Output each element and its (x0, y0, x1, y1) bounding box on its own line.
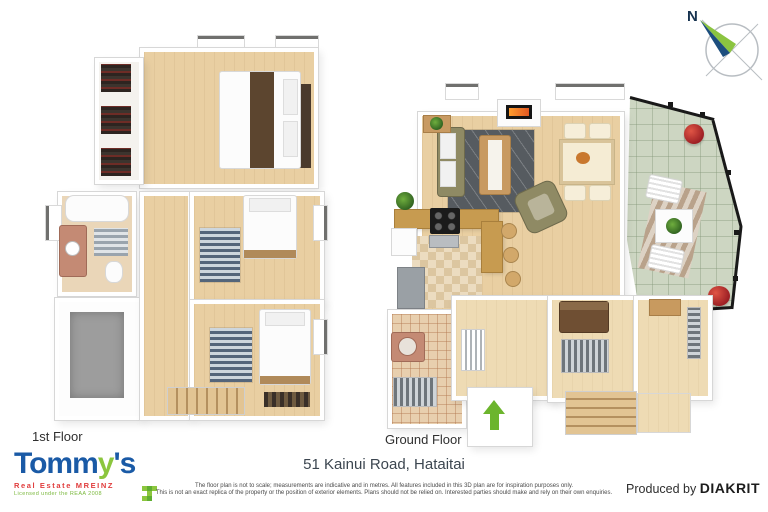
sofa-cushion (441, 134, 455, 158)
fridge (398, 268, 424, 308)
entry-arrow (490, 414, 499, 430)
sofa-cushion (441, 162, 455, 186)
disclaimer: The floor plan is not to scale; measurem… (84, 483, 684, 497)
window-icon (556, 84, 624, 99)
fire-icon (509, 108, 529, 116)
dining-chair (565, 186, 585, 200)
window-icon (446, 84, 478, 99)
bar-stool (502, 224, 516, 238)
flower-pot (684, 124, 704, 144)
ground-floor-plan (0, 0, 768, 512)
cabinet (650, 300, 680, 315)
dresser-top (560, 302, 608, 310)
produced-by-label: Produced by (626, 482, 696, 496)
brand-prefix: Tomm (14, 447, 98, 480)
produced-by: Produced by DIAKRIT (626, 480, 760, 496)
bar-stool (504, 248, 518, 262)
brand-wordmark: Tommy's (14, 448, 174, 480)
brand-y: y (98, 447, 114, 480)
railing-post (726, 170, 731, 175)
table-runner (488, 140, 502, 190)
stair-landing (638, 394, 690, 432)
bar-stool (506, 272, 520, 286)
entry-porch (468, 388, 532, 446)
property-address: 51 Kainui Road, Hataitai (234, 456, 534, 473)
railing-post (668, 102, 673, 107)
dining-chair (565, 124, 585, 138)
ground-floor-label: Ground Floor (385, 432, 462, 447)
dining-chair (590, 124, 610, 138)
compass-north-label: N (687, 8, 698, 25)
radiator (562, 340, 608, 372)
washer-door (399, 338, 416, 355)
radiator (688, 308, 700, 358)
kitchen-peninsula (482, 222, 502, 272)
potted-plant (666, 218, 682, 234)
cooktop (430, 208, 460, 234)
oven (430, 236, 458, 247)
disclaimer-line-1: The floor plan is not to scale; measurem… (84, 483, 684, 490)
floorplan-page: N 1st Floor Ground Floor Tommy's Real Es… (0, 0, 768, 512)
potted-plant (396, 192, 414, 210)
brand-suffix: 's (113, 447, 135, 480)
producer-name: DIAKRIT (700, 480, 760, 496)
compass (686, 6, 766, 86)
radiator (394, 378, 436, 406)
dining-chair (590, 186, 610, 200)
potted-plant (430, 117, 443, 130)
first-floor-label: 1st Floor (32, 429, 83, 444)
disclaimer-line-2: This is not an exact replica of the prop… (84, 490, 684, 497)
railing-post (733, 276, 738, 281)
radiator (462, 330, 484, 370)
railing-post (700, 112, 705, 117)
railing-post (734, 230, 739, 235)
staircase (566, 392, 636, 434)
dishwasher (392, 229, 416, 255)
fruit-bowl (576, 152, 590, 164)
entry-arrow-head (483, 400, 505, 414)
